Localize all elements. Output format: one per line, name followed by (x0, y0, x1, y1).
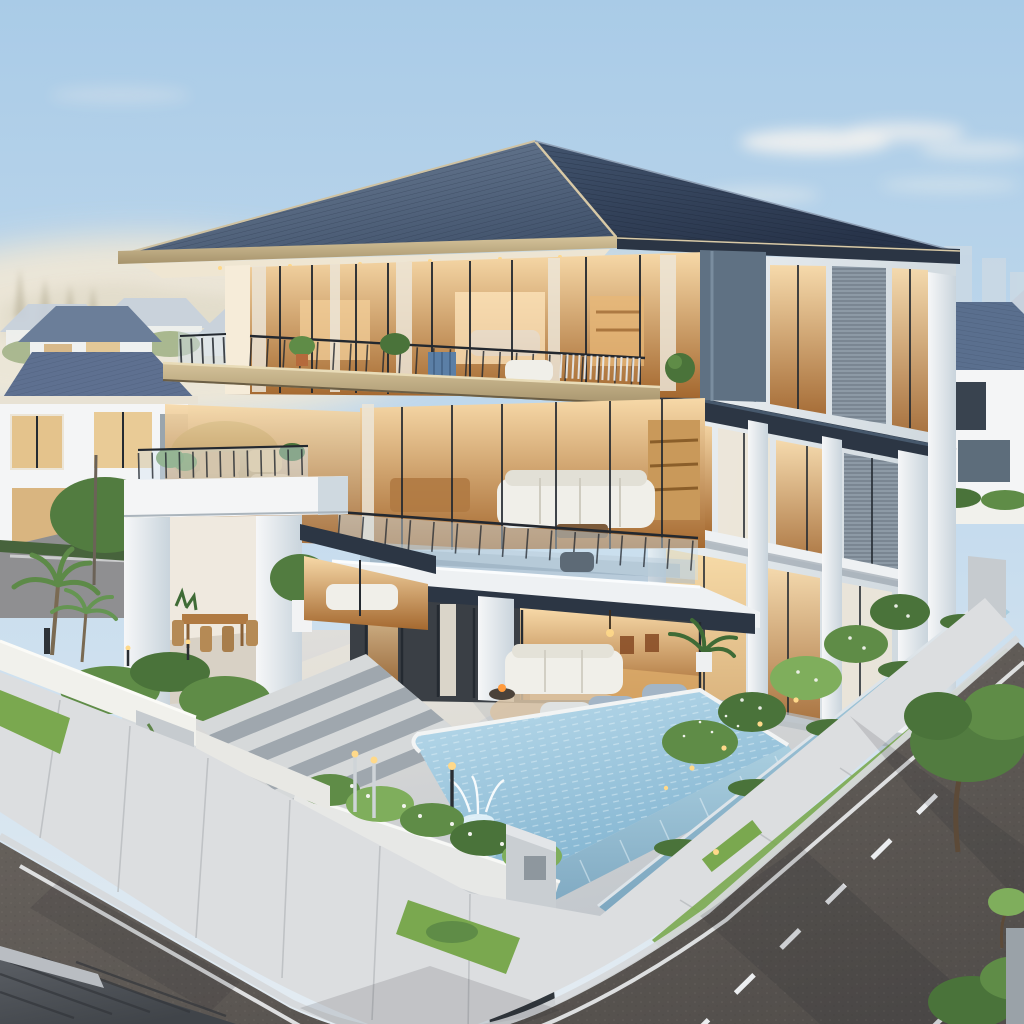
balcony-plant (289, 336, 315, 356)
bedroom-bed (326, 584, 398, 610)
dining-table-top (182, 614, 248, 624)
street-pole (94, 455, 96, 585)
wall-fixture (44, 628, 50, 654)
gate-inset-panel (524, 856, 546, 880)
top-floor (163, 250, 766, 406)
terrace-chair (560, 552, 594, 572)
rendered-scene: Photorealistic golden-hour rendering of … (0, 0, 1024, 1024)
villa-illustration: Photorealistic golden-hour rendering of … (0, 0, 1024, 1024)
corner-pier (700, 250, 766, 402)
right-edge-pillar (1006, 928, 1024, 1024)
